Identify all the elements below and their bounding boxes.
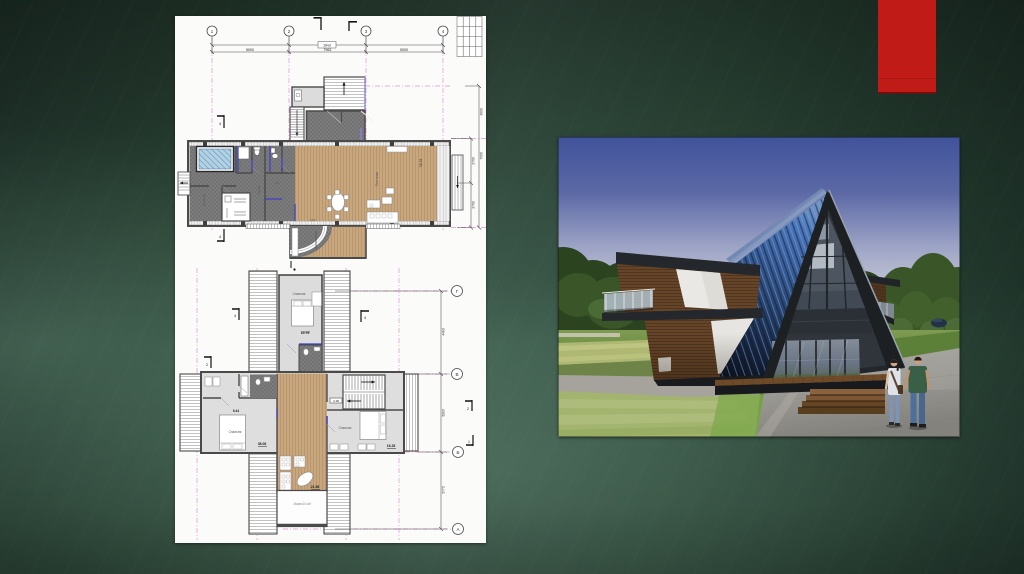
svg-text:1: 1 (468, 440, 470, 444)
svg-text:16.28: 16.28 (387, 444, 396, 448)
svg-text:Спальня: Спальня (293, 292, 306, 296)
svg-text:4: 4 (219, 122, 221, 126)
svg-text:2: 2 (467, 407, 469, 411)
svg-text:10.79: 10.79 (301, 331, 310, 335)
svg-text:Спальня: Спальня (339, 426, 352, 430)
svg-text:2700: 2700 (472, 157, 476, 165)
svg-text:4480: 4480 (442, 328, 446, 336)
svg-text:21.58: 21.58 (311, 485, 320, 489)
svg-text:6.44: 6.44 (233, 409, 239, 413)
svg-text:1.5: 1.5 (275, 181, 279, 185)
svg-text:Спальня: Спальня (229, 430, 242, 434)
svg-text:Спальня: Спальня (202, 194, 206, 206)
svg-text:5.7: 5.7 (237, 163, 241, 167)
svg-text:4000: 4000 (480, 108, 484, 116)
svg-text:7961: 7961 (324, 48, 332, 52)
svg-text:09.15: 09.15 (419, 159, 423, 168)
svg-text:В: В (455, 372, 458, 377)
svg-text:2: 2 (206, 363, 208, 367)
svg-text:5000: 5000 (246, 48, 254, 52)
svg-text:4: 4 (234, 314, 236, 318)
svg-text:14.6: 14.6 (310, 218, 316, 222)
svg-text:Кухня: Кухня (257, 186, 261, 194)
svg-text:38.08: 38.08 (258, 442, 267, 446)
svg-text:5980: 5980 (442, 409, 446, 417)
svg-text:Б: Б (456, 450, 459, 455)
svg-text:Зимний сад: Зимний сад (293, 502, 310, 506)
svg-text:4: 4 (219, 235, 221, 239)
svg-text:2.28: 2.28 (333, 399, 339, 403)
svg-text:4: 4 (364, 316, 366, 320)
svg-text:Гостиная: Гостиная (375, 172, 379, 186)
svg-text:5000: 5000 (400, 48, 408, 52)
svg-text:7000: 7000 (480, 152, 484, 160)
svg-text:5770: 5770 (442, 486, 446, 494)
svg-text:2700: 2700 (472, 201, 476, 209)
